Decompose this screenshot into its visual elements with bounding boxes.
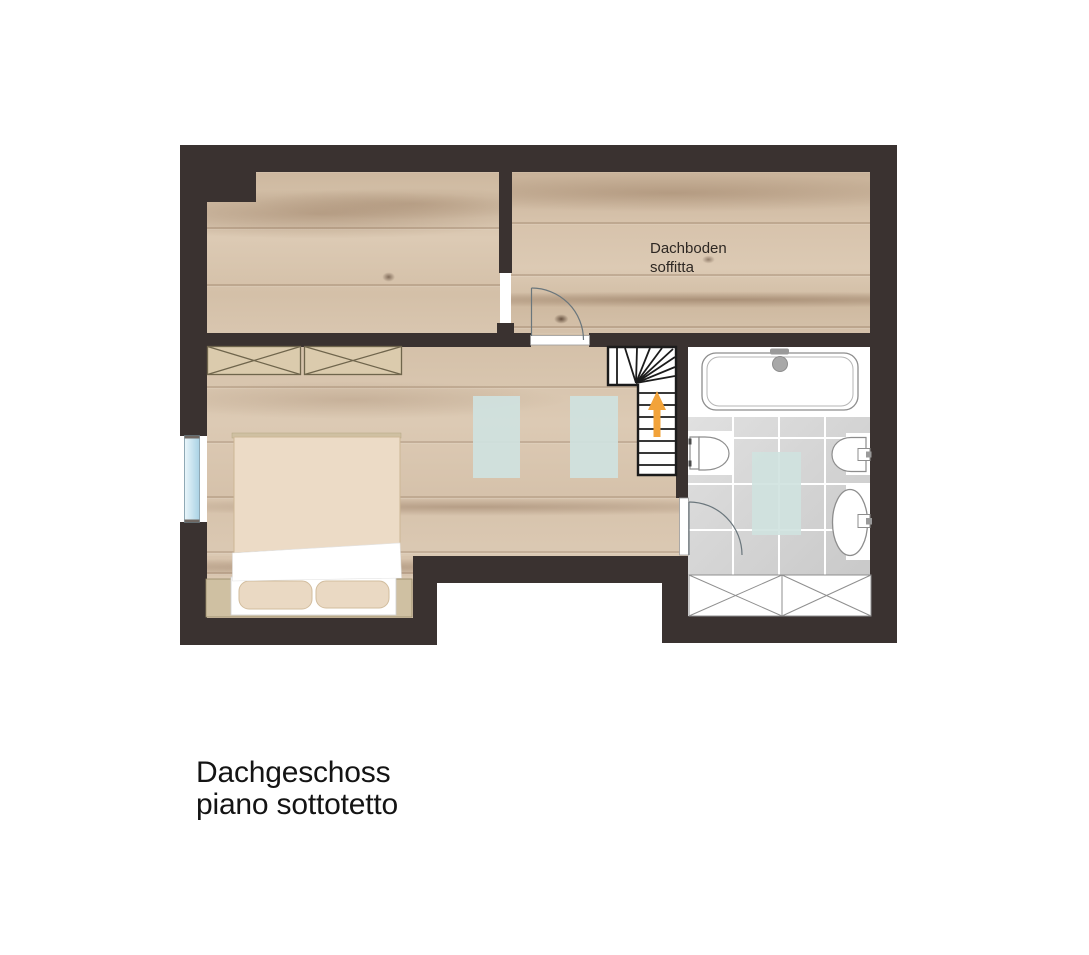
floorplan-canvas: Dachboden soffitta Dachgeschoss piano so… (0, 0, 1089, 955)
door-attic (531, 288, 590, 345)
attic-room-label-line2: soffitta (650, 258, 727, 277)
door-bathroom (680, 498, 743, 555)
bidet (832, 433, 872, 475)
wardrobe-bedroom (208, 347, 402, 375)
floor-caption: Dachgeschoss piano sottotetto (196, 757, 398, 821)
wardrobe-bathroom (689, 575, 871, 616)
attic-room-label-line1: Dachboden (650, 239, 727, 258)
attic-room-label: Dachboden soffitta (650, 239, 727, 277)
window (185, 436, 200, 522)
skylight-bathroom (752, 452, 801, 535)
washbasin (833, 483, 873, 560)
bed-duvet (234, 437, 400, 553)
skylight-bedroom-1 (473, 396, 520, 478)
toilet (688, 431, 732, 475)
bed (206, 433, 412, 617)
staircase (608, 347, 676, 475)
floor-caption-line1: Dachgeschoss (196, 757, 398, 789)
bathtub (702, 349, 858, 411)
fixtures-overlay (0, 0, 1089, 955)
floor-caption-line2: piano sottotetto (196, 789, 398, 821)
skylight-bedroom-2 (570, 396, 618, 478)
